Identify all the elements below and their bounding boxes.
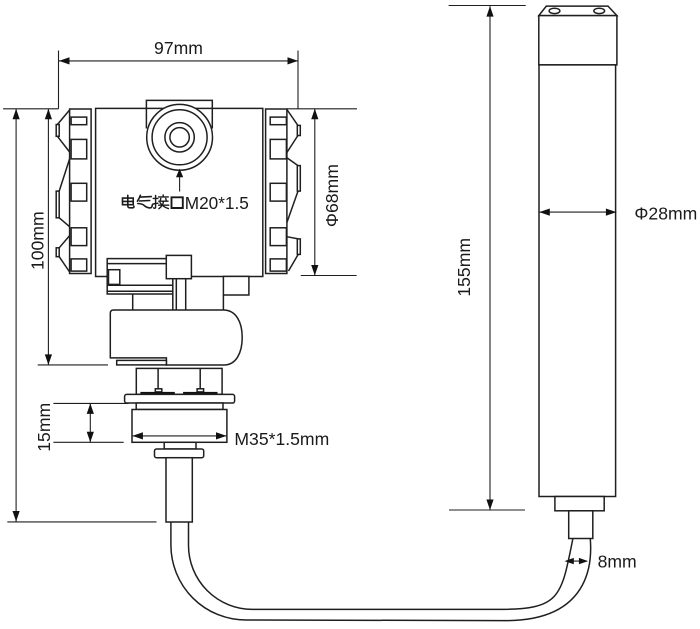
svg-text:M20*1.5: M20*1.5 — [185, 193, 249, 213]
svg-text:15mm: 15mm — [34, 403, 54, 452]
svg-text:100mm: 100mm — [28, 211, 48, 270]
svg-text:97mm: 97mm — [154, 38, 203, 58]
svg-text:Φ28mm: Φ28mm — [634, 204, 697, 224]
svg-text:155mm: 155mm — [454, 238, 474, 297]
svg-text:M35*1.5mm: M35*1.5mm — [234, 429, 329, 449]
svg-text:8mm: 8mm — [598, 551, 637, 571]
svg-text:Φ68mm: Φ68mm — [322, 164, 342, 227]
